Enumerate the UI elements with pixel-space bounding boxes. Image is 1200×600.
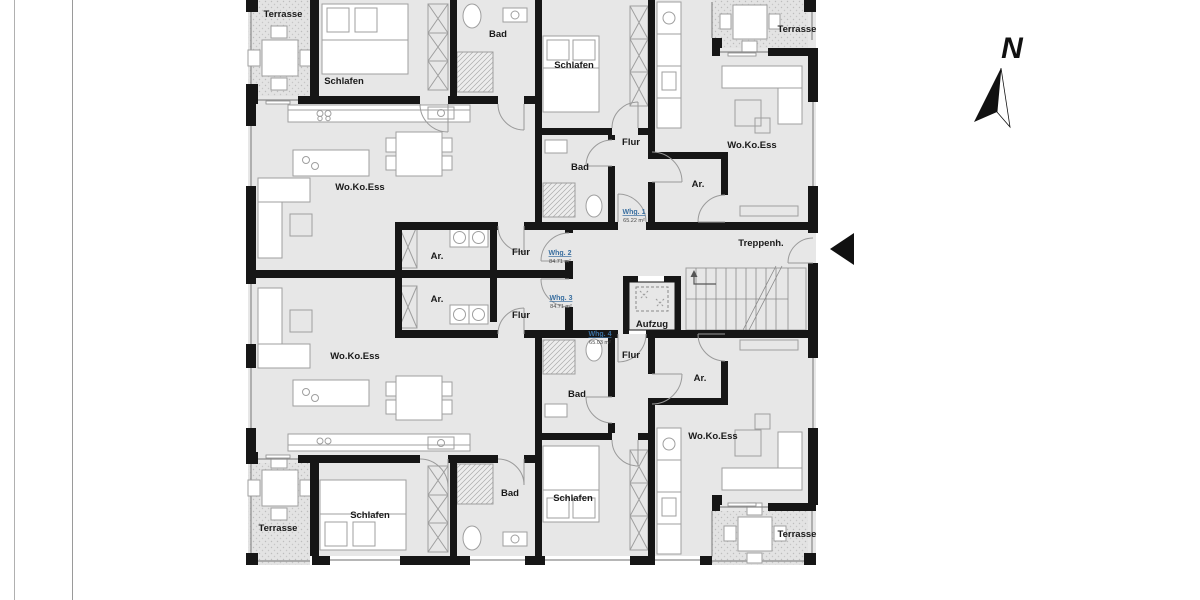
room-label-bad-whg4: Bad (568, 389, 586, 400)
room-label-wokoess-br: Wo.Ko.Ess (688, 431, 737, 442)
apartment-3-area: 84.71 m² (550, 304, 572, 310)
room-label-terrasse-tl: Terrasse (264, 9, 303, 20)
apartment-1-area: 65.22 m² (623, 218, 645, 224)
room-label-flur-wlow: Flur (512, 310, 530, 321)
room-label-ar-br: Ar. (694, 373, 707, 384)
room-label-ar-wlow: Ar. (431, 294, 444, 305)
room-label-schlafen-bm: Schlafen (553, 493, 593, 504)
floorplan-page: N Terrasse Schlafen Bad Schlafen Flur Ba… (0, 0, 1200, 600)
apartment-2-area: 84.71 m² (549, 259, 571, 265)
north-arrow-dark (974, 68, 1001, 122)
room-label-treppenhaus: Treppenh. (738, 238, 783, 249)
room-label-ar-wup: Ar. (431, 251, 444, 262)
apartment-4-name: Whg. 4 (589, 331, 612, 338)
apartment-4-area: 65.03 m² (589, 340, 611, 346)
room-label-aufzug: Aufzug (636, 319, 668, 330)
room-label-schlafen-tm: Schlafen (554, 60, 594, 71)
room-label-ar-tr: Ar. (692, 179, 705, 190)
apartment-1-name: Whg. 1 (623, 209, 646, 216)
room-label-wokoess-wup: Wo.Ko.Ess (335, 182, 384, 193)
bed-top-left (322, 4, 408, 74)
north-label: N (1001, 32, 1024, 65)
room-label-bad-top: Bad (489, 29, 507, 40)
kitchen-column-top-right (657, 2, 681, 128)
entrance-arrow (830, 233, 854, 265)
room-label-terrasse-tr: Terrasse (778, 24, 817, 35)
room-label-schlafen-bl: Schlafen (350, 510, 390, 521)
apartment-2-name: Whg. 2 (549, 250, 572, 257)
room-label-bad-bottom: Bad (501, 488, 519, 499)
north-compass: N (974, 32, 1024, 127)
room-label-flur-wup: Flur (512, 247, 530, 258)
room-label-flur-tm: Flur (622, 137, 640, 148)
room-label-schlafen-tl: Schlafen (324, 76, 364, 87)
kitchen-column-bottom-right (657, 428, 681, 554)
apartment-3-name: Whg. 3 (550, 295, 573, 302)
room-label-wokoess-tr: Wo.Ko.Ess (727, 140, 776, 151)
floorplan-drawing: N Terrasse Schlafen Bad Schlafen Flur Ba… (0, 0, 1200, 600)
room-label-terrasse-br: Terrasse (778, 529, 817, 540)
bed-bottom-middle (543, 446, 599, 522)
room-label-terrasse-bl: Terrasse (259, 523, 298, 534)
room-label-wokoess-wlow: Wo.Ko.Ess (330, 351, 379, 362)
bed-top-middle (543, 36, 599, 112)
room-label-bad-mid: Bad (571, 162, 589, 173)
room-label-flur-whg4: Flur (622, 350, 640, 361)
sheet-frame (15, 0, 73, 600)
